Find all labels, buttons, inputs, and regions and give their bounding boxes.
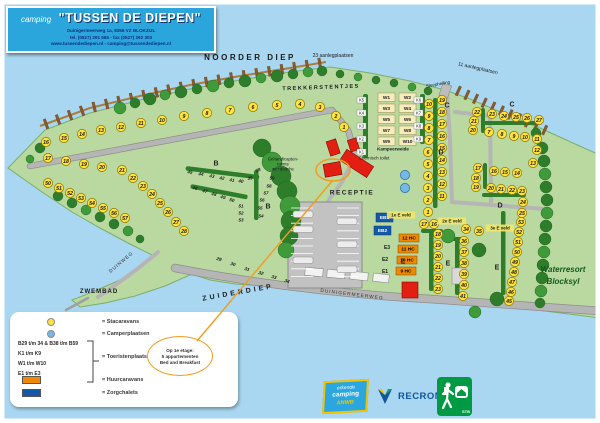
tourist-pitch-number: 45: [186, 169, 193, 175]
trekkershutten-logo: STB: [437, 377, 472, 416]
stacaravan-pitch-number: 16: [439, 134, 445, 140]
stacaravan-pitch-number: 13: [439, 170, 445, 176]
stacaravan-pitch-number: 9: [513, 134, 516, 140]
kampeerweide-pitch-label: W6: [404, 117, 412, 123]
stacaravan-pitch-number: 54: [89, 201, 95, 207]
tourist-pitch-number: 59: [269, 176, 275, 181]
tree-icon: [123, 226, 133, 236]
stacaravan-pitch-number: 48: [510, 270, 517, 276]
stacaravan-pitch-number: 18: [435, 232, 441, 238]
tree-icon: [303, 67, 313, 77]
camperplaatsen-legend-label: = Camperplaatsen: [102, 331, 150, 337]
stacaravan-pitch-number: 27: [535, 118, 543, 124]
legend-code-k: K1 t/m K9: [18, 351, 41, 357]
recron-logo-text: RECRON: [398, 391, 442, 402]
legend-code-b: B29 t/m 34 & B38 t/m B59: [18, 341, 78, 347]
huurcaravan-swatch: [22, 376, 41, 384]
k-pitch-label: K1: [359, 149, 365, 154]
bnb-note-line-2: 5 appartementen: [162, 354, 199, 359]
stacaravan-pitch-number: 52: [516, 230, 522, 236]
stacaravans-legend-label: = Stacaravans: [102, 319, 139, 325]
tree-icon: [539, 233, 551, 245]
stacaravan-pitch-number: 40: [460, 283, 467, 289]
camping-map-page: 1615141312111098765432117181920212223242…: [0, 0, 600, 423]
e3-field-label: E3: [384, 245, 390, 251]
stacaravan-pitch-number: 3: [319, 105, 322, 111]
stacaravan-pitch-number: 26: [164, 210, 171, 216]
parked-car: [337, 218, 357, 225]
area-b-label-1: B: [213, 160, 218, 167]
stacaravan-pitch-number: 2: [334, 114, 338, 120]
stacaravan-pitch-number: 23: [518, 189, 525, 195]
stacaravan-pitch-number: 20: [434, 254, 441, 260]
stacaravan-pitch-number: 14: [439, 158, 445, 164]
site-title-prefix: camping: [21, 15, 51, 24]
stacaravan-pitch-number: 51: [515, 240, 521, 246]
tree-icon: [538, 246, 550, 258]
kampeerweide-pitch-label: W1: [383, 95, 391, 101]
tree-icon: [535, 298, 545, 308]
stacaravan-pitch-number: 10: [426, 102, 432, 108]
stacaravan-pitch-number: 46: [507, 290, 514, 296]
e2-field-label: E2: [382, 257, 388, 263]
stacaravan-pitch-number: 24: [500, 114, 507, 120]
stacaravan-pitch-number: 16: [43, 140, 49, 146]
waterresort-label-1: Waterresort: [541, 265, 586, 274]
zorgchalets-legend-label: = Zorgchalets: [102, 390, 138, 396]
stacaravan-pitch-number: 1: [427, 210, 430, 216]
stacaravan-pitch-number: 11: [534, 137, 539, 143]
stacaravan-pitch-number: 16: [431, 222, 437, 228]
tree-icon: [109, 219, 119, 229]
stacaravan-pitch-number: 18: [439, 110, 445, 116]
stacaravan-pitch-number: 22: [473, 110, 480, 116]
stacaravan-pitch-number: 4: [298, 102, 302, 108]
stacaravan-pitch-number: 6: [427, 150, 430, 156]
bnb-note: Op 1e etage: 5 appartementen Bed and Bre…: [147, 336, 213, 376]
red-building: [402, 282, 418, 298]
kampeerweide-pitch-label: W3: [383, 106, 391, 112]
stacaravan-pitch-number: 45: [505, 299, 512, 305]
huurcaravan-label: 11 HC: [401, 247, 415, 253]
tree-icon: [224, 78, 234, 88]
k-pitch-label: K3: [359, 123, 365, 128]
stacaravan-pitch-number: 47: [508, 280, 516, 286]
stacaravan-pitch-number: 2: [426, 198, 430, 204]
stacaravan-pitch-number: 10: [522, 135, 528, 141]
stacaravan-pitch-number: 55: [100, 206, 106, 212]
stacaravan-pitch-number: 16: [491, 169, 497, 175]
tourist-pitch-number: 55: [257, 206, 263, 211]
tree-icon: [441, 229, 455, 243]
tree-icon: [541, 194, 553, 206]
site-address: Duinigermeerweg 1a, 8356 VZ BLOKZIJL tel…: [8, 28, 214, 48]
tree-icon: [317, 66, 327, 76]
stacaravan-pitch-number: 21: [497, 187, 504, 193]
stacaravan-pitch-number: 53: [518, 220, 524, 226]
stacaravan-pitch-number: 8: [428, 126, 431, 132]
stacaravan-pitch-number: 18: [473, 176, 479, 182]
stacaravan-pitch-number: 50: [514, 250, 520, 256]
legend-code-w: W1 t/m W10: [18, 361, 46, 367]
chemisch-toilet-label: Chemisch toilet: [359, 156, 391, 161]
stacaravan-pitch-number: 51: [56, 186, 62, 192]
area-e-label-1: E: [401, 258, 406, 265]
stacaravan-pitch-number: 25: [512, 115, 519, 121]
kampeerweide-pitch-label: W7: [383, 128, 391, 134]
e1-field-label: E1: [382, 269, 388, 275]
stacaravan-pitch-number: 23: [139, 184, 146, 190]
stacaravan-pitch-number: 9: [428, 114, 431, 120]
tree-icon: [67, 198, 77, 208]
tree-icon: [136, 235, 144, 243]
tree-icon: [540, 220, 552, 232]
stacaravan-pitch-number: 35: [476, 229, 482, 235]
stacaravan-pitch-number: 56: [111, 211, 117, 217]
k-pitch-label: K4: [359, 110, 365, 115]
tree-icon: [535, 285, 547, 297]
stacaravan-pitch-number: 28: [180, 229, 187, 235]
veld-1e-label: 1e E veld: [391, 213, 411, 218]
k-pitch-label: K9: [416, 136, 422, 141]
zorgchalet-label: EB2: [378, 228, 388, 234]
zorgchalet-swatch: [22, 389, 41, 397]
stacaravan-pitch-number: 23: [434, 287, 441, 293]
stacaravan-pitch-number: 9: [183, 114, 186, 120]
stacaravan-pitch-number: 50: [45, 181, 51, 187]
legend-bracket: [86, 340, 100, 384]
stacaravan-pitch-number: 5: [427, 162, 430, 168]
area-c-label-2: C: [509, 101, 514, 108]
stacaravan-pitch-number: 15: [61, 136, 67, 142]
tree-icon: [490, 292, 504, 306]
camper-swatch: [47, 330, 55, 338]
stacaravan-pitch-number: 18: [63, 159, 69, 165]
kampeerweide-pitch-label: W4: [404, 106, 412, 112]
address-line-2: tel. (0527) 291 565 - fax (0527) 292 303: [8, 35, 214, 42]
recron-swoosh-icon: [375, 386, 395, 406]
tree-icon: [239, 75, 251, 87]
stacaravan-pitch-number: 21: [434, 265, 441, 271]
stacaravan-pitch-number: 24: [148, 192, 155, 198]
tree-icon: [95, 212, 105, 222]
stacaravan-pitch-number: 26: [523, 116, 530, 122]
stacaravan-pitch-number: 22: [434, 276, 441, 282]
area-d-label-1: D: [438, 149, 443, 156]
tree-icon: [540, 181, 552, 193]
parked-car: [337, 266, 357, 273]
area-c-label-1: C: [444, 102, 449, 109]
kampeerweide-pitch-label: W9: [383, 139, 391, 145]
anwb-logo-line-3: ANWB: [324, 398, 366, 408]
parked-car: [293, 226, 313, 233]
stacaravan-pitch-number: 52: [67, 191, 73, 197]
tree-icon: [354, 73, 362, 81]
tree-icon: [144, 93, 156, 105]
tourist-pitch-number: 42: [218, 175, 225, 181]
address-line-3: www.tussendediepen.nl - camping@tussende…: [8, 41, 214, 48]
stacaravan-pitch-number: 22: [129, 176, 136, 182]
anwb-camping-logo: erkende camping ANWB: [322, 379, 369, 414]
stacaravan-pitch-number: 12: [534, 148, 540, 154]
k-pitch-label: K6: [416, 97, 422, 102]
stacaravan-pitch-number: 12: [118, 125, 124, 131]
stacaravan-pitch-number: 12: [439, 182, 445, 188]
stacaravan-swatch: [47, 318, 55, 326]
tourist-pitch-number: 57: [263, 191, 269, 196]
stacaravan-pitch-number: 13: [530, 161, 536, 167]
huurcaravans-legend-label: = Huurcaravans: [102, 377, 143, 383]
area-b-label-2: B: [265, 203, 270, 210]
stacaravan-pitch-number: 24: [519, 200, 526, 206]
waterresort-label-2: Blocksyl: [547, 277, 581, 286]
stacaravan-pitch-number: 14: [79, 132, 85, 138]
tourist-pitch-number: 51: [238, 204, 244, 209]
stacaravan-pitch-number: 22: [508, 188, 515, 194]
tourist-pitch-number: 44: [197, 171, 204, 177]
stacaravan-pitch-number: 4: [426, 174, 430, 180]
zwembad-label: ZWEMBAD: [80, 289, 118, 295]
tourist-pitch-number: 41: [228, 177, 235, 183]
parked-car: [337, 241, 357, 248]
recron-logo: RECRON: [375, 386, 442, 406]
k-pitch-label: K2: [359, 136, 365, 141]
stacaravan-pitch-number: 20: [98, 165, 105, 171]
stacaravan-pitch-number: 3: [427, 186, 430, 192]
stacaravan-pitch-number: 20: [469, 128, 476, 134]
stacaravan-pitch-number: 13: [98, 128, 104, 134]
veld-3e-label: 3e E veld: [490, 226, 510, 231]
stacaravan-pitch-number: 19: [435, 243, 441, 249]
stacaravan-pitch-number: 21: [470, 119, 477, 125]
hiker-icon: STB: [437, 377, 472, 416]
stacaravan-pitch-number: 11: [439, 194, 444, 200]
stacaravan-pitch-number: 11: [138, 121, 143, 127]
stacaravan-pitch-number: 49: [511, 260, 518, 266]
aanlegplaatsen-23-label: 23 aanlegplaatsen: [313, 53, 354, 59]
tree-icon: [271, 70, 283, 82]
tourist-pitch-number: 58: [266, 184, 272, 189]
k-pitch-label: K7: [416, 110, 422, 115]
camper-pitch: [400, 183, 409, 192]
stacaravan-pitch-number: 38: [461, 261, 467, 267]
stacaravan-pitch-number: 6: [252, 105, 255, 111]
area-e-label-3: E: [495, 264, 500, 271]
stb-logo-text: STB: [462, 409, 470, 414]
stacaravan-pitch-number: 41: [459, 294, 466, 300]
stacaravan-pitch-number: 25: [156, 201, 163, 207]
kampeerweide-pitch-label: W2: [404, 95, 412, 101]
tree-icon: [114, 102, 126, 114]
site-title: camping "TUSSEN DE DIEPEN": [8, 11, 214, 27]
tree-icon: [192, 84, 202, 94]
tree-icon: [256, 73, 266, 83]
tree-icon: [288, 69, 298, 79]
gehandicapten-label-3: wc+douche: [272, 167, 294, 172]
kampeerweide-pitch-label: W8: [404, 128, 412, 134]
tree-icon: [336, 70, 344, 78]
stacaravan-pitch-number: 14: [514, 171, 520, 177]
tree-icon: [472, 243, 486, 257]
stacaravan-pitch-number: 20: [487, 186, 494, 192]
stacaravan-pitch-number: 53: [78, 196, 84, 202]
receptie-label: RECEPTIE: [330, 189, 375, 196]
huurcaravan-label: 9 HC: [401, 269, 412, 275]
tree-icon: [26, 155, 34, 163]
huurcaravan-label: 12 HC: [402, 236, 416, 242]
parked-car: [293, 257, 313, 264]
tree-icon: [175, 86, 187, 98]
toeristenplaatsen-legend-label: = Toeristenplaatsen: [102, 354, 153, 360]
k-pitch-label: K8: [416, 123, 422, 128]
tree-icon: [372, 76, 380, 84]
tree-icon: [539, 168, 551, 180]
k-pitch-label: K5: [359, 97, 365, 102]
stacaravan-pitch-number: 23: [488, 112, 495, 118]
tourist-pitch-number: 53: [238, 218, 244, 223]
stacaravan-pitch-number: 21: [118, 168, 125, 174]
kampeerweide-label: Kampeerweide: [377, 147, 409, 152]
tree-icon: [207, 80, 219, 92]
site-title-name: "TUSSEN DE DIEPEN": [59, 11, 201, 25]
tourist-pitch-number: 54: [258, 214, 264, 219]
tourist-pitch-number: 52: [238, 211, 244, 216]
stacaravan-pitch-number: 5: [276, 103, 279, 109]
kampeerweide-pitch-label: W10: [403, 139, 413, 145]
tree-icon: [390, 79, 398, 87]
stacaravan-pitch-number: 19: [81, 162, 87, 168]
tree-icon: [130, 98, 140, 108]
stacaravan-pitch-number: 36: [461, 239, 467, 245]
stacaravan-pitch-number: 25: [518, 211, 525, 217]
tourist-pitch-number: 40: [237, 178, 244, 184]
tree-icon: [541, 207, 553, 219]
stacaravan-pitch-number: 27: [172, 220, 180, 226]
area-d-label-2: D: [497, 202, 502, 209]
camper-pitch: [400, 170, 409, 179]
tree-icon: [408, 83, 416, 91]
tourist-pitch-number: 43: [208, 173, 215, 179]
stacaravan-pitch-number: 19: [473, 185, 479, 191]
site-logo: camping "TUSSEN DE DIEPEN" Duinigermeerw…: [6, 6, 216, 53]
tree-icon: [538, 155, 550, 167]
tourist-pitch-number: 56: [259, 198, 265, 203]
tree-icon: [160, 90, 170, 100]
stacaravan-pitch-number: 15: [502, 170, 508, 176]
address-line-1: Duinigermeerweg 1a, 8356 VZ BLOKZIJL: [8, 28, 214, 35]
bnb-note-line-3: Bed and Breakfast: [160, 360, 200, 365]
stacaravan-pitch-number: 8: [501, 132, 504, 138]
bnb-note-line-1: Op 1e etage:: [166, 348, 194, 353]
stacaravan-pitch-number: 1: [343, 125, 346, 131]
veld-2e-label: 2e E veld: [442, 219, 462, 224]
tree-icon: [469, 306, 481, 318]
parked-car: [293, 211, 313, 218]
noorder-diep-label: NOORDER DIEP: [204, 53, 296, 62]
stacaravan-pitch-number: 39: [461, 272, 467, 278]
kampeerweide-pitch-label: W5: [383, 117, 391, 123]
tree-icon: [278, 242, 294, 258]
stacaravan-pitch-number: 34: [463, 227, 469, 233]
area-e-label-2: E: [446, 260, 451, 267]
stacaravan-pitch-number: 10: [159, 118, 165, 124]
stacaravan-pitch-number: 8: [206, 111, 209, 117]
